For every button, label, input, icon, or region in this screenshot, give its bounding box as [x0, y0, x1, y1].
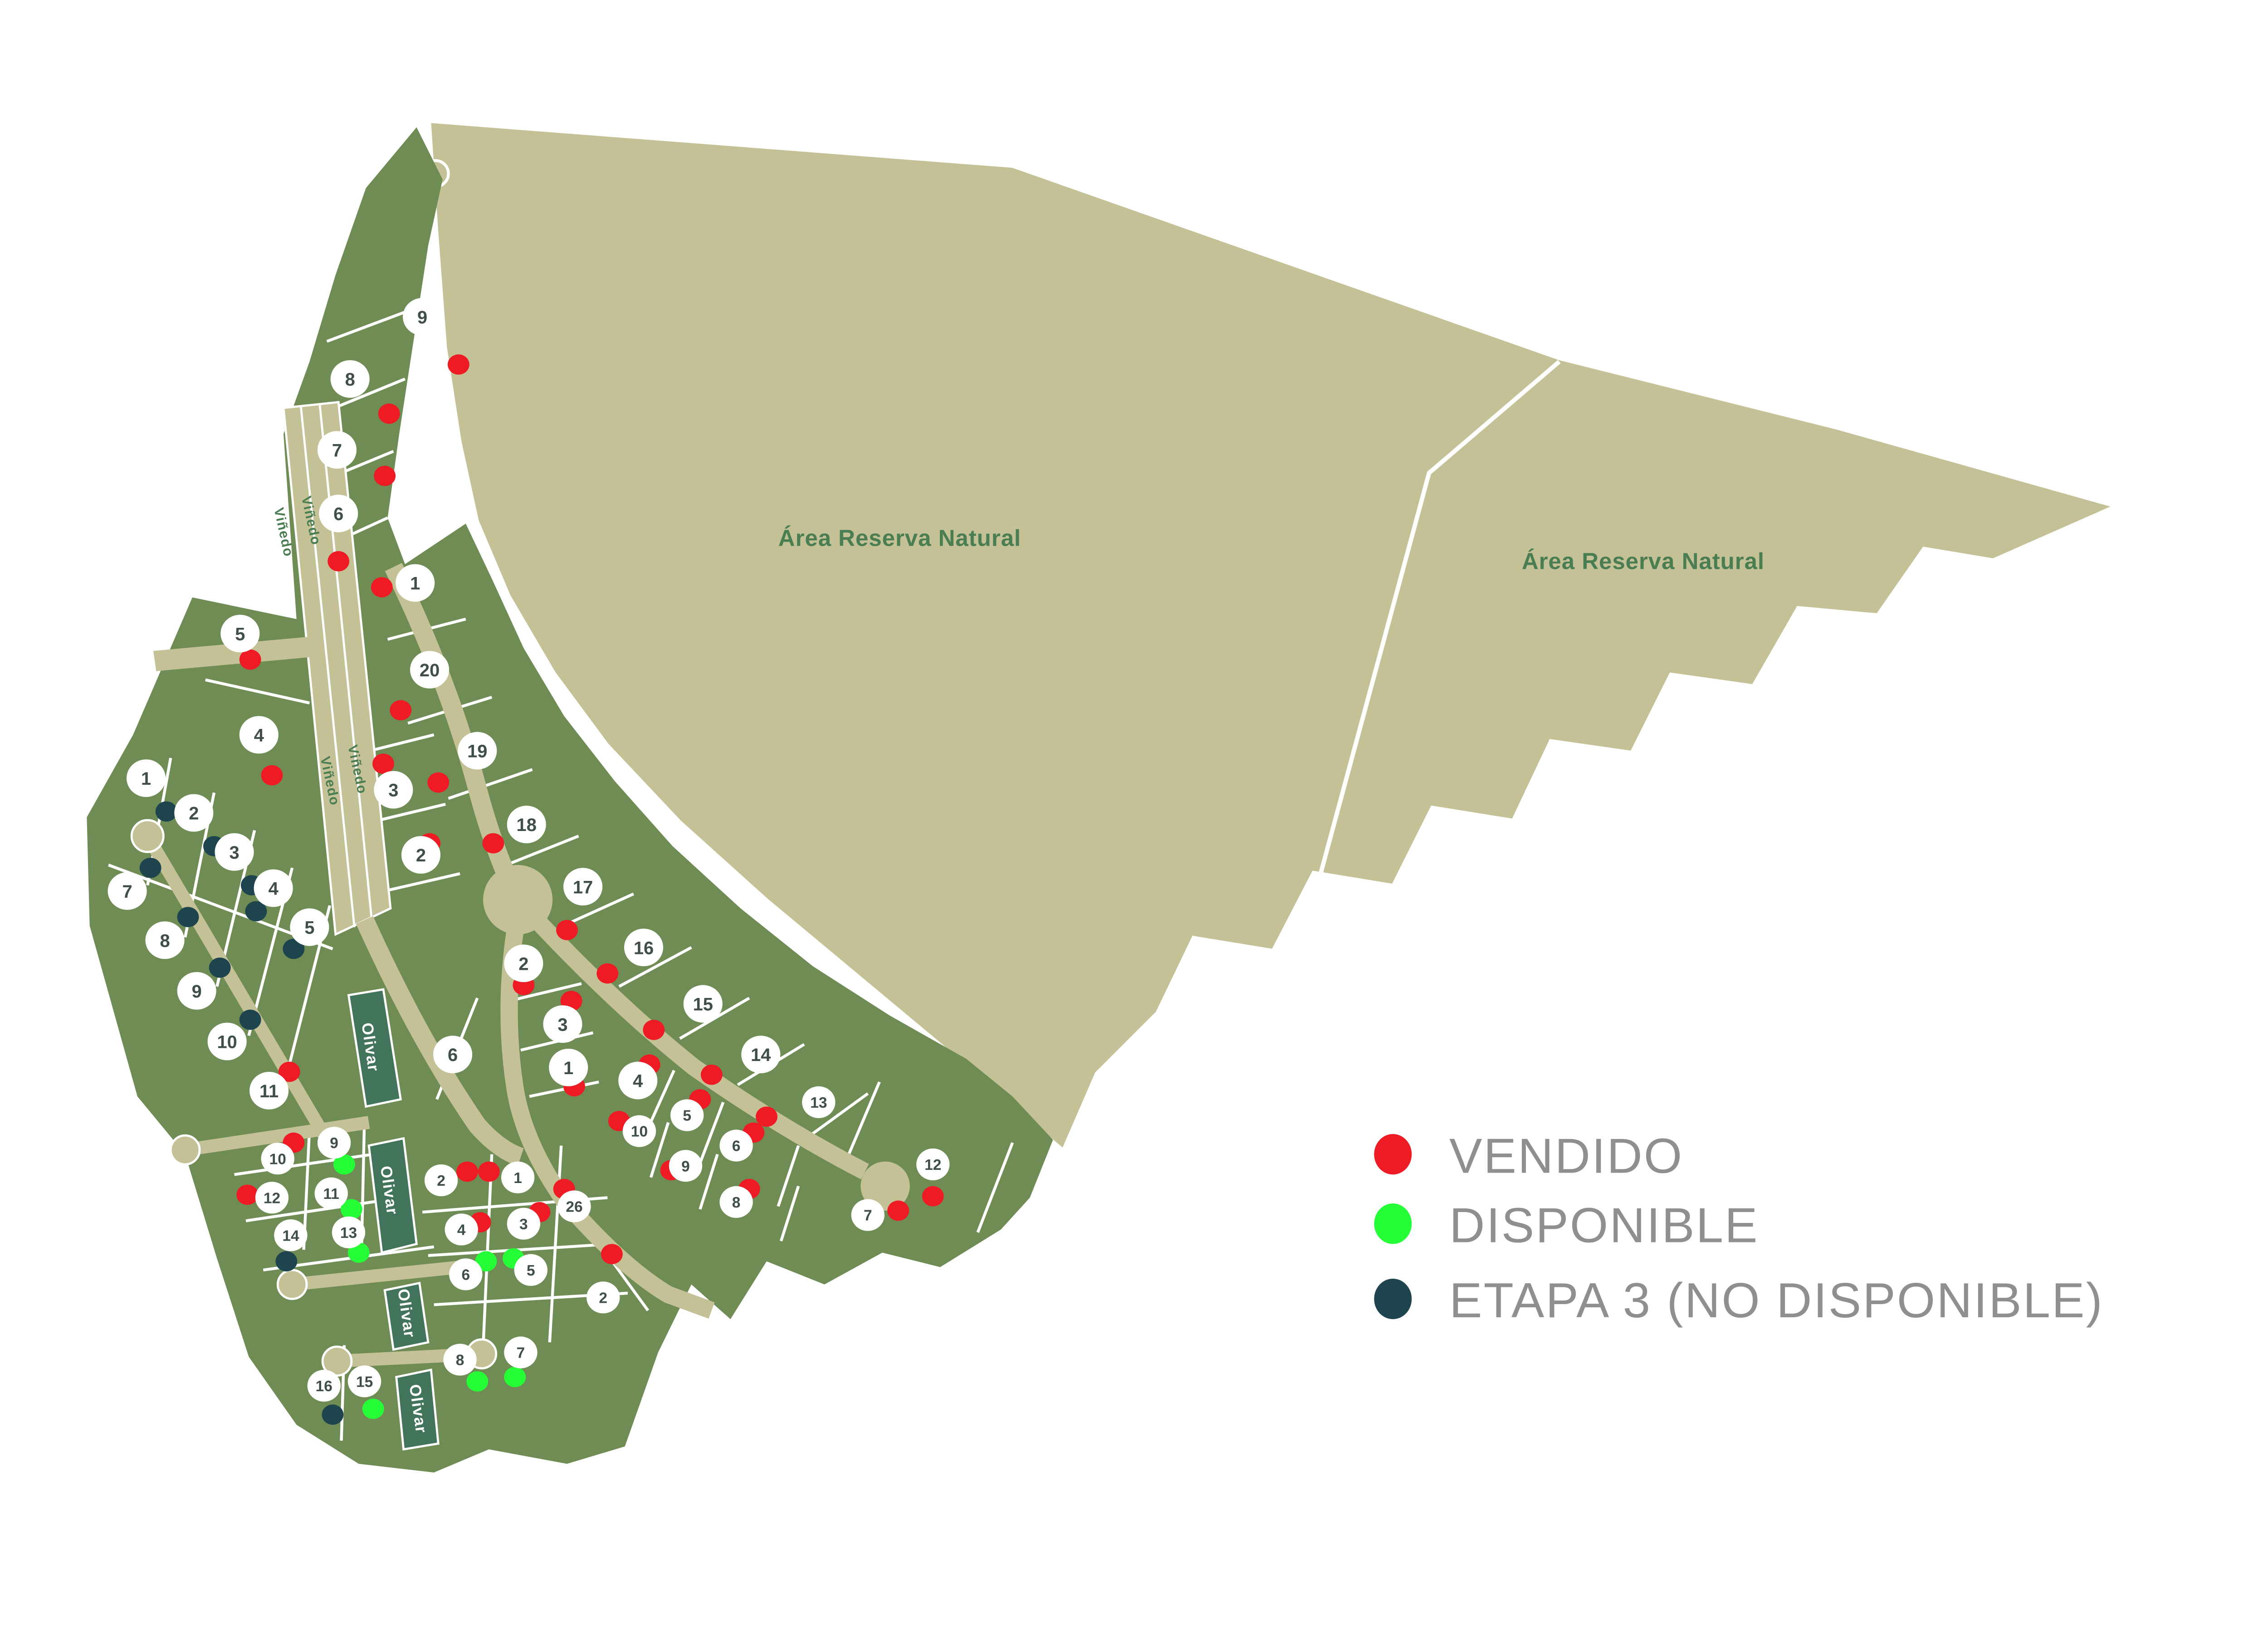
- lot-marker-5: 5: [290, 909, 329, 946]
- lot-number: 4: [633, 1071, 643, 1091]
- status-dot-vendido: [390, 700, 411, 720]
- lot-number: 1: [410, 574, 420, 594]
- culdesac-bulb: [278, 1270, 307, 1299]
- lot-number: 2: [189, 804, 199, 824]
- lot-marker-4: 4: [240, 716, 279, 753]
- status-dot-etapa3: [322, 1404, 344, 1425]
- lot-marker-7: 7: [108, 872, 147, 910]
- status-dot-vendido: [478, 1162, 500, 1182]
- status-dot-etapa3: [209, 958, 231, 978]
- lot-number: 2: [599, 1290, 607, 1306]
- status-dot-vendido: [482, 833, 504, 854]
- lot-marker-4: 4: [618, 1062, 657, 1100]
- legend-dot-vendido: [1374, 1134, 1412, 1174]
- lot-marker-4: 4: [445, 1213, 478, 1245]
- lot-number: 6: [333, 504, 343, 524]
- lot-marker-18: 18: [507, 806, 546, 843]
- reserve-label: Área Reserva Natural: [778, 525, 1021, 551]
- lot-number: 4: [254, 725, 264, 745]
- lot-marker-6: 6: [433, 1036, 472, 1073]
- lot-marker-13: 13: [332, 1217, 365, 1248]
- lot-number: 8: [456, 1352, 464, 1369]
- lot-number: 11: [259, 1081, 279, 1101]
- lot-number: 3: [557, 1015, 567, 1035]
- lot-number: 7: [122, 882, 132, 902]
- lot-marker-5: 5: [220, 615, 259, 652]
- lot-number: 15: [693, 995, 713, 1015]
- lot-marker-5: 5: [670, 1099, 704, 1131]
- lot-number: 6: [732, 1138, 741, 1155]
- reserve-label: Área Reserva Natural: [1522, 548, 1765, 574]
- lot-marker-8: 8: [331, 360, 370, 398]
- status-dot-etapa3: [156, 802, 177, 822]
- lot-number: 4: [457, 1222, 466, 1239]
- lot-marker-3: 3: [215, 833, 254, 871]
- lot-number: 8: [345, 370, 355, 390]
- lot-number: 18: [517, 815, 537, 835]
- lot-marker-9: 9: [318, 1127, 351, 1159]
- status-dot-vendido: [427, 772, 449, 793]
- lot-marker-7: 7: [504, 1336, 537, 1368]
- lot-number: 16: [316, 1378, 332, 1395]
- legend-label-vendido: VENDIDO: [1449, 1128, 1683, 1183]
- lot-number: 10: [269, 1151, 286, 1168]
- lot-marker-8: 8: [443, 1344, 476, 1375]
- lot-number: 7: [864, 1208, 872, 1224]
- lot-number: 14: [751, 1045, 771, 1065]
- lot-marker-10: 10: [208, 1022, 247, 1060]
- status-dot-disponible: [466, 1371, 488, 1392]
- lot-marker-5: 5: [514, 1254, 547, 1286]
- lot-marker-20: 20: [410, 651, 449, 689]
- lot-marker-1: 1: [127, 759, 166, 797]
- lot-marker-12: 12: [255, 1182, 288, 1213]
- lot-number: 2: [416, 846, 426, 865]
- lot-number: 9: [192, 982, 202, 1002]
- lot-map-page: ViñedoViñedoViñedoViñedoOlivarOlivarOliv…: [0, 0, 2268, 1511]
- legend-label-etapa3: ETAPA 3 (NO DISPONIBLE): [1449, 1273, 2104, 1328]
- lot-number: 1: [141, 769, 151, 789]
- lot-number: 8: [732, 1194, 741, 1211]
- lot-number: 3: [229, 843, 239, 863]
- culdesac-bulb: [171, 1135, 200, 1164]
- lot-marker-10: 10: [623, 1115, 656, 1147]
- lot-number: 10: [217, 1032, 237, 1052]
- culdesac-bulb: [132, 820, 163, 852]
- lot-number: 5: [683, 1108, 691, 1125]
- lot-marker-9: 9: [177, 972, 216, 1010]
- status-dot-vendido: [756, 1106, 777, 1127]
- lot-marker-8: 8: [719, 1186, 753, 1218]
- lot-marker-2: 2: [587, 1281, 620, 1313]
- lot-marker-16: 16: [308, 1370, 341, 1402]
- lot-marker-3: 3: [507, 1208, 540, 1240]
- lot-number: 1: [513, 1170, 522, 1187]
- status-dot-vendido: [327, 551, 349, 572]
- status-dot-etapa3: [275, 1251, 297, 1271]
- lot-number: 3: [519, 1216, 528, 1233]
- lot-number: 20: [420, 660, 440, 680]
- lot-number: 2: [518, 954, 528, 974]
- lot-marker-1: 1: [396, 564, 435, 602]
- lot-number: 19: [467, 742, 487, 762]
- lot-marker-14: 14: [274, 1219, 307, 1251]
- status-dot-vendido: [240, 650, 261, 670]
- lot-number: 3: [388, 781, 398, 801]
- status-dot-vendido: [701, 1065, 723, 1085]
- lot-marker-19: 19: [458, 732, 497, 770]
- lot-marker-4: 4: [254, 869, 293, 907]
- lot-number: 12: [924, 1157, 941, 1173]
- status-dot-vendido: [261, 765, 283, 786]
- status-dot-vendido: [556, 920, 578, 940]
- lot-marker-15: 15: [684, 985, 723, 1023]
- lot-marker-11: 11: [315, 1178, 348, 1209]
- lot-marker-12: 12: [916, 1149, 949, 1180]
- status-dot-vendido: [887, 1201, 909, 1221]
- lot-marker-3: 3: [374, 771, 413, 809]
- lot-marker-3: 3: [543, 1005, 582, 1043]
- lot-number: 9: [681, 1158, 690, 1175]
- lot-marker-2: 2: [174, 794, 213, 832]
- lot-number: 4: [269, 879, 279, 899]
- lot-marker-13: 13: [802, 1086, 835, 1118]
- lot-marker-2: 2: [401, 836, 440, 874]
- lot-marker-1: 1: [549, 1049, 588, 1086]
- status-dot-vendido: [643, 1020, 665, 1040]
- status-dot-etapa3: [177, 907, 199, 927]
- lot-number: 26: [566, 1199, 582, 1216]
- status-dot-vendido: [374, 466, 396, 486]
- lot-marker-14: 14: [741, 1036, 780, 1073]
- status-dot-vendido: [596, 963, 618, 984]
- lot-number: 10: [631, 1124, 648, 1140]
- status-dot-etapa3: [240, 1010, 261, 1030]
- lot-number: 7: [332, 440, 342, 460]
- lot-number: 5: [235, 624, 245, 644]
- status-dot-vendido: [236, 1185, 258, 1205]
- lot-number: 8: [160, 931, 170, 951]
- legend-dot-etapa3: [1374, 1279, 1412, 1319]
- status-dot-etapa3: [140, 858, 161, 878]
- legend-label-disponible: DISPONIBLE: [1449, 1198, 1759, 1252]
- lot-marker-6: 6: [449, 1258, 482, 1290]
- lot-marker-7: 7: [318, 431, 357, 469]
- lot-marker-11: 11: [249, 1072, 288, 1110]
- lot-marker-8: 8: [145, 921, 184, 959]
- lot-number: 16: [634, 938, 654, 958]
- lot-marker-26: 26: [557, 1190, 591, 1222]
- lot-marker-10: 10: [261, 1143, 294, 1174]
- lot-marker-17: 17: [563, 868, 602, 905]
- lot-number: 6: [448, 1045, 458, 1065]
- lot-marker-9: 9: [669, 1150, 702, 1182]
- lot-marker-7: 7: [851, 1199, 885, 1231]
- status-dot-vendido: [448, 354, 469, 375]
- lot-marker-2: 2: [425, 1164, 458, 1196]
- lot-marker-2: 2: [504, 944, 543, 982]
- lot-number: 12: [264, 1190, 280, 1207]
- status-dot-vendido: [601, 1244, 623, 1264]
- map-svg: ViñedoViñedoViñedoViñedoOlivarOlivarOliv…: [0, 0, 2268, 1511]
- lot-marker-9: 9: [403, 298, 442, 336]
- lot-number: 5: [304, 918, 314, 938]
- status-dot-vendido: [456, 1162, 478, 1182]
- legend-dot-disponible: [1374, 1203, 1412, 1244]
- status-dot-vendido: [378, 404, 400, 424]
- lot-marker-16: 16: [624, 929, 663, 966]
- lot-number: 7: [517, 1345, 525, 1362]
- lot-marker-15: 15: [348, 1365, 381, 1397]
- lot-marker-6: 6: [319, 495, 358, 533]
- lot-number: 11: [323, 1186, 339, 1203]
- status-dot-vendido: [372, 753, 394, 774]
- lot-number: 13: [810, 1095, 827, 1111]
- lot-number: 9: [417, 308, 427, 328]
- lot-number: 2: [437, 1173, 445, 1189]
- lot-number: 5: [527, 1262, 535, 1279]
- status-dot-disponible: [362, 1399, 384, 1419]
- status-dot-vendido: [371, 577, 393, 597]
- legend-item-etapa3: ETAPA 3 (NO DISPONIBLE): [1374, 1273, 2104, 1328]
- lot-marker-6: 6: [719, 1129, 753, 1161]
- lot-number: 1: [563, 1058, 573, 1078]
- status-dot-disponible: [504, 1367, 526, 1387]
- lot-number: 15: [356, 1374, 373, 1390]
- lot-number: 13: [340, 1225, 357, 1242]
- status-dot-vendido: [922, 1186, 944, 1207]
- lot-marker-1: 1: [501, 1162, 534, 1193]
- lot-number: 6: [461, 1266, 470, 1283]
- lot-number: 9: [330, 1135, 338, 1152]
- lot-number: 14: [282, 1227, 299, 1244]
- lot-number: 17: [573, 877, 593, 897]
